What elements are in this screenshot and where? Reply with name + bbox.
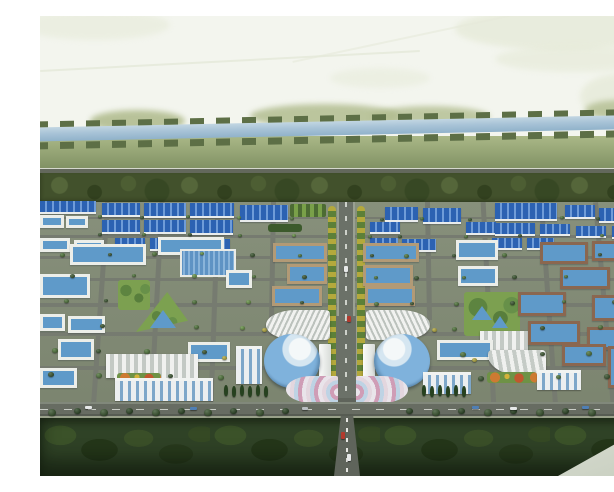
- conifer-hedge: [224, 385, 228, 396]
- lake-park: [464, 292, 520, 336]
- courtyard-office-brown: [608, 346, 614, 388]
- tree: [222, 356, 227, 360]
- car: [190, 407, 197, 410]
- courtyard-office: [365, 286, 415, 306]
- tree: [292, 234, 296, 237]
- tree: [70, 274, 75, 278]
- tree: [250, 253, 255, 257]
- courtyard-office-brown: [540, 242, 588, 264]
- office-block: [456, 240, 498, 260]
- foreground-forest: [40, 418, 614, 476]
- car: [582, 406, 589, 409]
- tree: [458, 408, 465, 414]
- office-block: [66, 216, 88, 228]
- tree: [142, 233, 146, 236]
- courtyard-office-brown: [592, 241, 614, 261]
- tree: [406, 408, 413, 414]
- courtyard-office: [273, 243, 327, 262]
- factory-hall: [466, 222, 496, 235]
- office-block: [40, 368, 77, 388]
- conifer-hedge: [438, 385, 442, 396]
- tree: [452, 327, 457, 331]
- tree: [404, 254, 409, 258]
- tree: [478, 376, 484, 381]
- scene: Aerial bird's-eye architectural renderin…: [40, 16, 614, 476]
- pocket-park: [118, 280, 150, 310]
- tree: [168, 374, 173, 378]
- tree: [192, 274, 197, 278]
- courtyard-office-brown: [528, 321, 580, 345]
- tree: [48, 409, 56, 416]
- flower-plaza-left: [286, 376, 338, 403]
- tree: [510, 301, 515, 305]
- tree: [540, 326, 545, 330]
- factory-hall: [40, 201, 96, 214]
- factory-hall: [495, 203, 557, 221]
- office-block: [40, 238, 70, 252]
- tree: [556, 375, 561, 379]
- distant-field-patch: [495, 46, 614, 72]
- tree: [152, 252, 157, 256]
- tree: [300, 301, 304, 304]
- car: [472, 406, 479, 409]
- tree: [460, 352, 466, 357]
- tree: [186, 215, 190, 218]
- conifer-hedge: [462, 386, 466, 397]
- factory-hall: [240, 205, 288, 222]
- factory-hall: [370, 222, 400, 234]
- tree: [144, 349, 150, 354]
- tree: [108, 253, 112, 256]
- tree: [370, 254, 374, 257]
- factory-hall: [495, 223, 535, 236]
- tree: [462, 276, 466, 279]
- conifer-hedge: [232, 386, 236, 397]
- tree: [598, 253, 602, 256]
- tree: [414, 276, 419, 280]
- flower-plaza-right: [356, 376, 408, 403]
- hedge-block: [268, 224, 302, 232]
- tree: [472, 358, 477, 362]
- conifer-hedge: [446, 386, 450, 397]
- tree: [564, 275, 568, 278]
- car: [85, 406, 92, 409]
- conifer-hedge: [430, 386, 434, 397]
- tree: [202, 350, 207, 354]
- tree: [98, 233, 102, 236]
- tree: [252, 275, 256, 278]
- car: [341, 432, 345, 439]
- courtyard-office-brown: [562, 344, 606, 366]
- tree: [536, 409, 544, 416]
- car: [347, 316, 351, 322]
- tree-belt: [40, 173, 614, 204]
- conifer-hedge: [248, 386, 252, 397]
- tree: [100, 409, 108, 416]
- tree: [512, 275, 517, 279]
- tree: [298, 254, 302, 257]
- courtyard-office: [287, 264, 327, 284]
- office-block: [40, 215, 64, 228]
- factory-hall: [102, 203, 140, 217]
- tree: [600, 234, 604, 237]
- distant-field-patch: [40, 16, 170, 40]
- tree: [484, 409, 492, 416]
- tree: [598, 325, 603, 329]
- office-block: [40, 314, 65, 331]
- tree: [132, 274, 136, 277]
- tree: [290, 217, 294, 220]
- tree: [262, 328, 267, 332]
- tree: [192, 300, 197, 304]
- tree: [64, 299, 69, 303]
- tree: [502, 253, 507, 257]
- factory-hall: [540, 224, 570, 236]
- office-facade: [537, 370, 581, 390]
- tree: [368, 235, 372, 238]
- conifer-hedge: [454, 385, 458, 396]
- office-facade: [236, 346, 262, 384]
- courtyard-office-brown: [518, 292, 566, 316]
- tree: [60, 253, 65, 257]
- conifer-hedge: [256, 385, 260, 396]
- tree: [204, 409, 212, 416]
- tree: [302, 275, 307, 279]
- tree: [96, 349, 101, 353]
- tree: [152, 409, 160, 416]
- tree: [218, 375, 224, 380]
- factory-hall: [599, 208, 614, 223]
- car: [344, 266, 348, 272]
- tree: [74, 408, 81, 414]
- tree: [48, 372, 54, 377]
- factory-hall: [190, 203, 234, 218]
- tree: [188, 233, 192, 236]
- office-block: [40, 274, 90, 298]
- office-facade: [115, 378, 213, 401]
- car: [302, 407, 308, 410]
- tree: [518, 234, 522, 237]
- tree: [140, 216, 144, 219]
- tree: [237, 216, 241, 219]
- tree: [410, 302, 414, 305]
- tree: [468, 218, 472, 221]
- tree: [238, 234, 242, 237]
- tree: [230, 408, 237, 414]
- tree: [374, 276, 378, 279]
- tree: [452, 254, 456, 257]
- tree: [246, 300, 251, 304]
- tree: [398, 235, 402, 238]
- courtyard-office-brown: [560, 267, 610, 289]
- tree: [586, 351, 592, 356]
- tree: [562, 408, 569, 414]
- factory-hall: [144, 220, 186, 234]
- tree: [380, 218, 384, 221]
- office-block: [437, 340, 493, 360]
- tree: [104, 299, 108, 302]
- office-block: [58, 339, 94, 360]
- factory-hall: [144, 203, 186, 218]
- courtyard-office: [272, 286, 322, 306]
- factory-hall: [190, 220, 233, 235]
- tree: [374, 302, 379, 306]
- tree: [200, 252, 204, 255]
- tree: [432, 328, 437, 332]
- tree: [126, 408, 133, 414]
- tree: [282, 408, 289, 414]
- tree-nursery: [290, 204, 326, 217]
- tree: [100, 324, 105, 328]
- tree: [256, 409, 264, 416]
- tree: [98, 215, 102, 218]
- tree: [604, 374, 610, 379]
- car: [510, 407, 517, 410]
- tree: [562, 300, 566, 303]
- conifer-hedge: [264, 386, 268, 397]
- office-block: [226, 270, 252, 288]
- factory-hall: [423, 208, 461, 224]
- tree: [420, 217, 424, 220]
- conifer-hedge: [422, 385, 426, 396]
- forest-road-centerline: [346, 418, 348, 476]
- courtyard-office: [363, 265, 413, 286]
- tree: [560, 216, 564, 219]
- tree: [454, 302, 459, 306]
- courtyard-office-brown: [592, 295, 614, 321]
- tree: [240, 326, 245, 330]
- tree: [432, 409, 440, 416]
- conifer-hedge: [240, 385, 244, 396]
- tree: [178, 408, 185, 414]
- tree: [52, 348, 58, 353]
- factory-hall: [102, 220, 140, 234]
- distant-field-patch: [330, 68, 430, 88]
- factory-hall: [565, 205, 595, 219]
- tree: [596, 217, 600, 220]
- roof-garden: [487, 372, 537, 383]
- tree: [194, 325, 199, 329]
- tree: [96, 373, 102, 378]
- tree: [464, 235, 468, 238]
- courtyard-office: [363, 243, 419, 262]
- tree: [540, 352, 545, 356]
- factory-hall: [385, 207, 418, 222]
- tree: [588, 409, 596, 416]
